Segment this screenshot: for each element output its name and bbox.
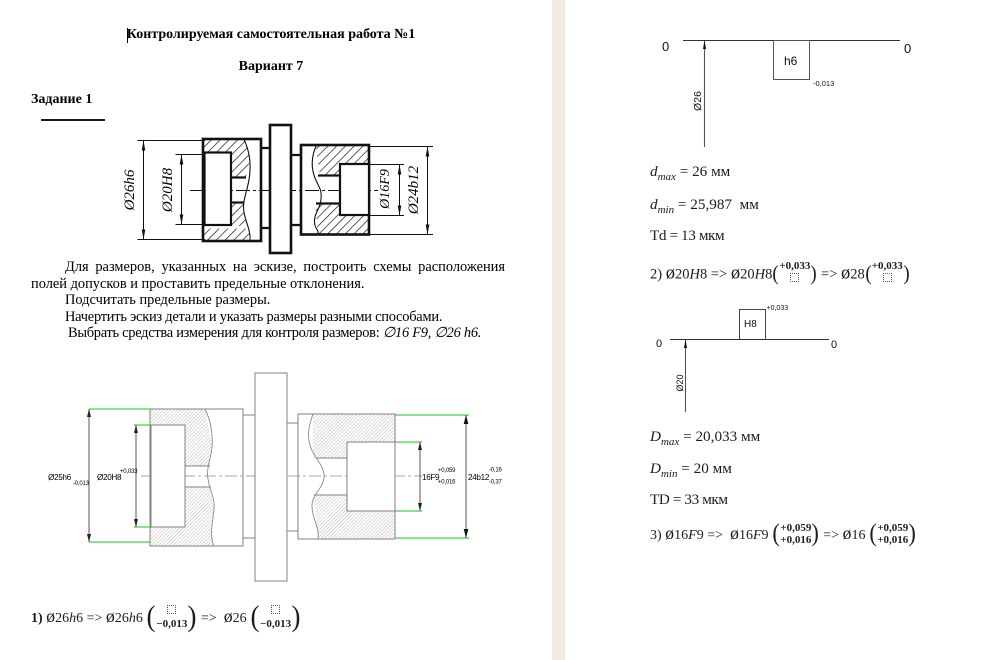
svg-text:+0,059: +0,059 [438, 468, 456, 474]
svg-text:Ø20H8: Ø20H8 [160, 167, 176, 213]
svg-text:+0,033: +0,033 [120, 469, 138, 475]
svg-text:Ø26: Ø26 [692, 91, 704, 111]
svg-text:0: 0 [656, 338, 662, 350]
svg-text:H8: H8 [744, 319, 757, 330]
svg-text:Ø20H8: Ø20H8 [97, 473, 122, 482]
svg-text:-0,013: -0,013 [813, 79, 834, 88]
svg-text:Ø25h6: Ø25h6 [48, 473, 72, 482]
svg-text:+0,016: +0,016 [438, 480, 456, 486]
svg-text:h6: h6 [784, 54, 798, 68]
svg-text:Ø20: Ø20 [675, 374, 685, 391]
svg-text:+0,033: +0,033 [767, 305, 789, 312]
svg-text:0: 0 [904, 41, 911, 56]
svg-text:0: 0 [831, 339, 837, 351]
svg-text:0: 0 [662, 39, 669, 54]
svg-text:24b12: 24b12 [468, 473, 490, 482]
svg-text:-0,37: -0,37 [489, 480, 503, 486]
svg-text:Ø16F9: Ø16F9 [378, 169, 393, 210]
svg-text:Ø24b12: Ø24b12 [406, 165, 422, 215]
svg-text:Ø26h6: Ø26h6 [122, 169, 138, 211]
svg-text:-0,013: -0,013 [73, 481, 90, 487]
svg-text:-0,16: -0,16 [489, 468, 503, 474]
